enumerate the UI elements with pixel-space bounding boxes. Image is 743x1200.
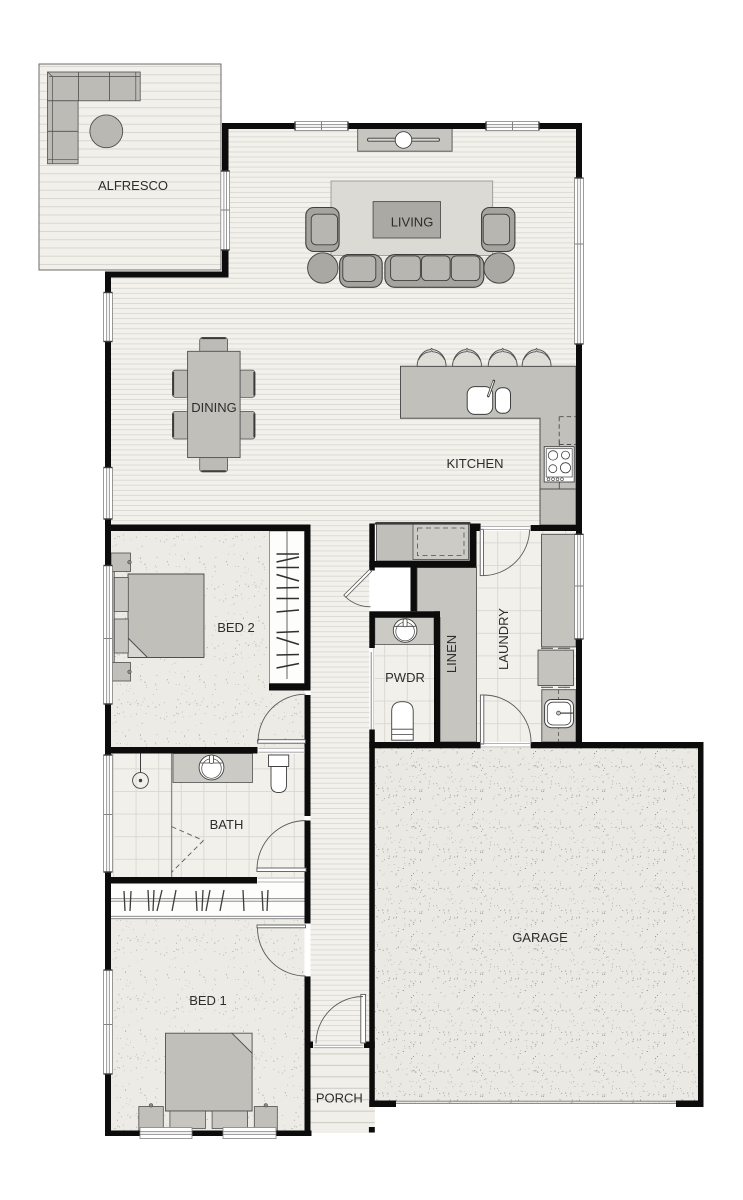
svg-text:PORCH: PORCH xyxy=(316,1091,363,1106)
svg-text:LAUNDRY: LAUNDRY xyxy=(496,608,511,670)
svg-text:BED 1: BED 1 xyxy=(189,993,227,1008)
svg-text:DINING: DINING xyxy=(191,400,237,415)
svg-text:KITCHEN: KITCHEN xyxy=(446,456,503,471)
svg-text:BED 2: BED 2 xyxy=(217,620,255,635)
svg-text:GARAGE: GARAGE xyxy=(512,930,568,945)
svg-text:BATH: BATH xyxy=(210,817,244,832)
svg-text:ALFRESCO: ALFRESCO xyxy=(98,178,168,193)
svg-text:LINEN: LINEN xyxy=(444,635,459,673)
svg-text:LIVING: LIVING xyxy=(391,215,434,230)
svg-text:PWDR: PWDR xyxy=(385,670,425,685)
